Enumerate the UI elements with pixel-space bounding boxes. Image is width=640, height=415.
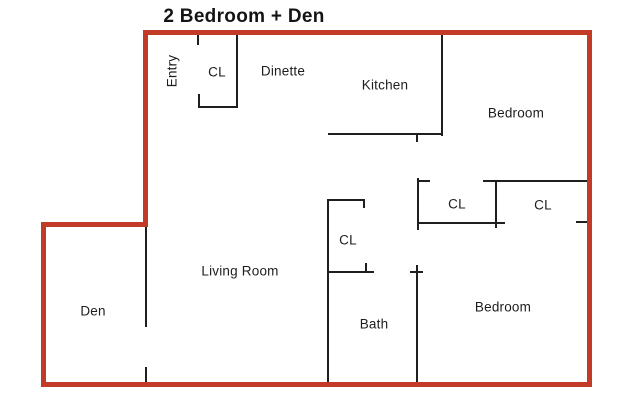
outline-outline-den-top xyxy=(41,222,148,227)
wall-bath-closet-top-jamb xyxy=(363,199,365,208)
room-label-entry: Entry xyxy=(165,55,180,88)
wall-hall-closet-right-tick xyxy=(576,221,587,223)
wall-bath-closet-top xyxy=(327,199,365,201)
wall-den-door-jamb xyxy=(145,367,147,382)
room-label-bedroom-top: Bedroom xyxy=(488,106,544,121)
outline-outline-left-lower xyxy=(41,222,46,387)
wall-kitchen-door-jamb xyxy=(416,135,418,142)
wall-kitchen-bottom-wall xyxy=(328,133,443,135)
wall-entry-closet-bottom xyxy=(198,106,238,108)
wall-hall-closets-mid-wall xyxy=(495,180,497,228)
wall-den-right-wall xyxy=(145,227,147,327)
wall-kitchen-right-wall xyxy=(441,35,443,136)
wall-hall-closets-bottom-wall xyxy=(417,222,505,224)
wall-hall-closets-top-wall xyxy=(483,180,587,182)
wall-entry-closet-right xyxy=(236,35,238,108)
room-label-closet-hall-right: CL xyxy=(534,198,552,213)
outline-outline-bottom xyxy=(41,382,592,387)
outline-outline-left-upper xyxy=(143,30,148,227)
room-label-dinette: Dinette xyxy=(261,64,305,79)
room-label-kitchen: Kitchen xyxy=(362,78,408,93)
outline-outline-top xyxy=(143,30,592,35)
room-label-den: Den xyxy=(80,304,105,319)
room-label-bedroom-bottom: Bedroom xyxy=(475,300,531,315)
wall-hall-closet-left-tick xyxy=(417,180,430,182)
outline-outline-right xyxy=(587,30,592,387)
wall-bath-closet-bottom-jamb xyxy=(365,263,367,272)
wall-living-bath-wall xyxy=(327,199,329,382)
room-label-closet-entry: CL xyxy=(208,65,226,80)
wall-entry-closet-top-tick xyxy=(197,35,199,45)
room-label-living-room: Living Room xyxy=(201,264,278,279)
room-label-bath: Bath xyxy=(360,317,389,332)
room-label-closet-bath: CL xyxy=(339,233,357,248)
room-label-closet-hall-left: CL xyxy=(448,197,466,212)
wall-bath-right-top-tick xyxy=(410,271,423,273)
floorplan-canvas: 2 Bedroom + Den EntryCLDinetteKitchenBed… xyxy=(0,0,640,415)
floorplan-title: 2 Bedroom + Den xyxy=(163,6,324,28)
wall-bath-right-wall xyxy=(416,265,418,382)
